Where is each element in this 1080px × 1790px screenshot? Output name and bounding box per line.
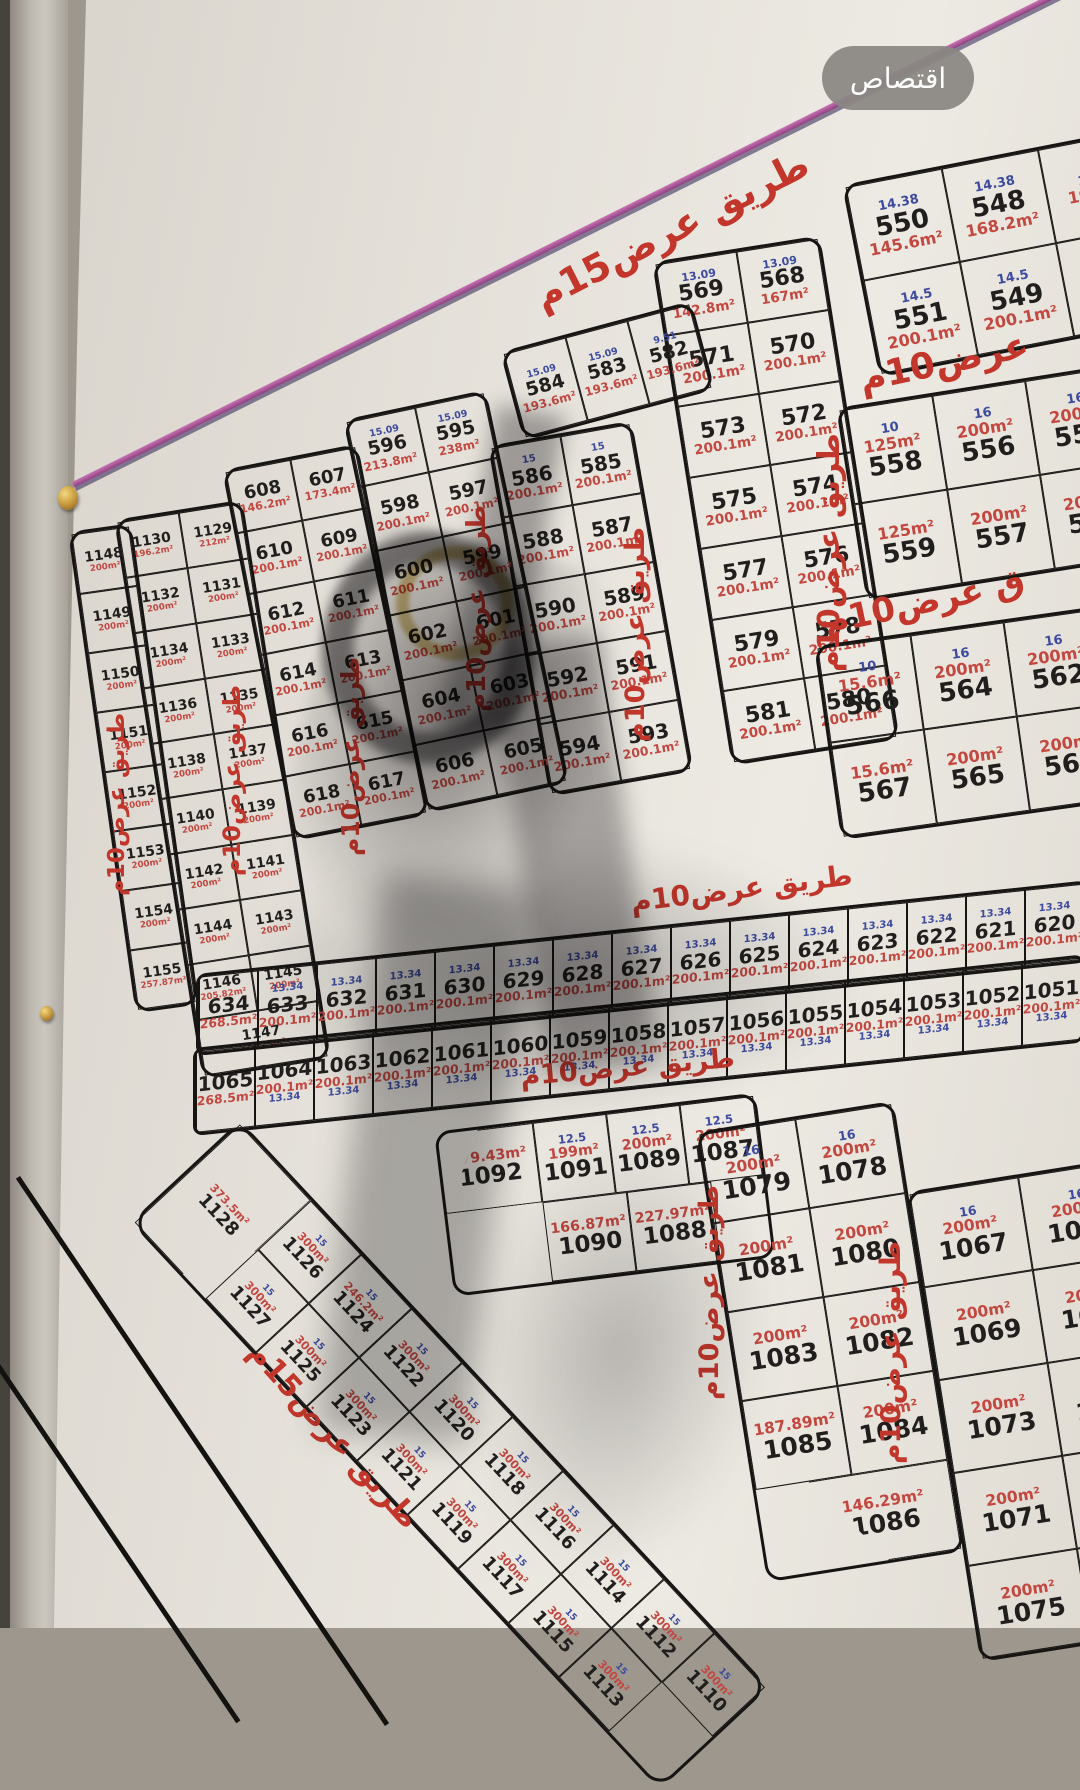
parcel-row: 1154200m²	[121, 883, 187, 950]
parcel-area: 200.1m²	[908, 943, 966, 962]
parcel-dimension: 13.34	[1036, 1012, 1068, 1026]
parcel-row: 1149200m²	[80, 586, 146, 653]
parcel-number: 563	[1042, 748, 1080, 782]
parcel-cell: 13.341051200.1m²	[1022, 958, 1080, 1046]
parcel-area: 200.1m²	[849, 949, 907, 968]
parcel-number: 1090	[557, 1228, 623, 1259]
parcel-area: 200m²	[131, 858, 163, 871]
parcel-dimension: 13.34	[977, 1018, 1009, 1032]
parcel-dimension: 13.34	[741, 1043, 773, 1057]
parcel-cell: 1150200m²	[88, 645, 154, 712]
parcel-area: 200.1m²	[613, 974, 671, 993]
parcel-number: 1092	[458, 1160, 524, 1191]
parcel-area: 268.5m²	[197, 1089, 255, 1108]
parcel-cell: 570200.1m²	[748, 310, 840, 394]
parcel-cell: 13.34627200.1m²	[612, 927, 671, 1009]
parcel-cell: 13.341064200.1m²	[255, 1038, 314, 1126]
parcel-number: 559	[881, 535, 939, 570]
parcel-row: 1148200m²	[71, 526, 137, 593]
parcel-area: 200m²	[98, 620, 130, 633]
parcel-cell: 13.341056200.1m²	[727, 989, 786, 1077]
parcel-cell: 579200.1m²	[712, 607, 804, 691]
parcel-dimension: 13.34	[918, 1024, 950, 1038]
parcel-cell: 606200.1m²	[415, 731, 497, 810]
parcel-cell: 13.34630200.1m²	[435, 946, 494, 1028]
parcel-cell: 16562200m²	[1004, 609, 1080, 716]
parcel-cell: 1133200m²	[196, 614, 266, 679]
parcel-cell: 161078200m²	[795, 1104, 905, 1208]
parcel-cell: 13.34623200.1m²	[848, 902, 907, 984]
parcel-cell: 13.34633200.1m²	[258, 964, 317, 1046]
parcel-cell: 10558125m²	[839, 396, 947, 505]
parcel-cell: 573200.1m²	[678, 394, 770, 478]
parcel-number: 564	[937, 674, 994, 708]
parcel-row: 1150200m²	[88, 645, 154, 712]
road-label-10m-vertical: طريق عرض10م	[104, 713, 130, 896]
parcel-cell: 1083200m²	[728, 1297, 838, 1401]
parcel-cell: 13.341053200.1m²	[904, 970, 963, 1058]
crop-badge[interactable]: اقتصاص	[822, 46, 974, 110]
road-label-10m-vertical: طريق عرض10م	[620, 527, 651, 742]
road-label-10m-vertical: طريق عرض10م	[874, 1241, 907, 1464]
parcel-cell: 575200.1m²	[689, 465, 781, 549]
parcel-cell: 16556200m²	[932, 381, 1040, 490]
parcel-cell: 13.34626200.1m²	[671, 921, 730, 1003]
parcel-number: 558	[867, 447, 925, 482]
parcel-cell: 1155257.87m²	[130, 942, 196, 1009]
parcel-cell: 13.34628200.1m²	[553, 933, 612, 1015]
parcel-cell: 13.341054200.1m²	[845, 976, 904, 1064]
parcel-cell: 1154200m²	[121, 883, 187, 950]
parcel-dimension: 13.34	[387, 1080, 419, 1094]
parcel-number: 555	[1066, 505, 1080, 540]
parcel-cell: 634268.5m²	[199, 970, 258, 1052]
parcel-dimension: 13.34	[328, 1086, 360, 1100]
parcel-cell: 13.34624200.1m²	[789, 908, 848, 990]
parcel-number: 562	[1030, 661, 1080, 695]
parcel-cell: 13.341063200.1m²	[314, 1032, 373, 1120]
parcel-cell: 161067200m²	[909, 1177, 1032, 1287]
parcel-cell: 13.341062200.1m²	[373, 1026, 432, 1114]
parcel-number: 1072	[1074, 1391, 1080, 1427]
parcel-number: 565	[949, 761, 1006, 795]
parcel-cell: 1148200m²	[71, 526, 137, 593]
parcel-cell: 12.51089200m²	[606, 1105, 689, 1193]
parcel-cell: 13.341052200.1m²	[963, 964, 1022, 1052]
push-pin	[58, 486, 78, 510]
parcel-cell: 14.38550145.6m²	[846, 169, 960, 281]
parcel-number: 557	[973, 520, 1031, 555]
parcel-area: 200.1m²	[790, 956, 848, 975]
parcel-cell: 12.51091199m²	[533, 1114, 616, 1202]
parcel-cell: 13.34625200.1m²	[730, 915, 789, 997]
parcel-cell: 1149200m²	[80, 586, 146, 653]
parcel-dimension: 13.34	[269, 1092, 301, 1106]
parcel-area: 200.1m²	[259, 1011, 317, 1030]
parcel-cell: 1085187.89m²	[742, 1386, 852, 1490]
parcel-area: 200.1m²	[495, 987, 553, 1006]
parcel-cell: 16564200m²	[910, 622, 1016, 729]
parcel-area: 200.1m²	[1026, 931, 1080, 950]
parcel-cell: 1143200m²	[240, 890, 310, 955]
parcel-row: 1155257.87m²	[130, 942, 196, 1009]
parcel-cell: 13.34631200.1m²	[376, 952, 435, 1034]
parcel-number: 1091	[543, 1156, 609, 1187]
parcel-area: 200.1m²	[318, 1005, 376, 1024]
road-label-10m-vertical: طريق عرض10م	[336, 657, 365, 856]
parcel-number: 566	[844, 687, 901, 721]
parcel-cell: 14.38548168.2m²	[942, 150, 1056, 262]
parcel-cell: 581200.1m²	[723, 678, 815, 762]
parcel-area: 200m²	[89, 561, 121, 574]
parcel-dimension: 13.34	[446, 1074, 478, 1088]
parcel-area: 200.1m²	[731, 962, 789, 981]
parcel-cell: 13.34629200.1m²	[494, 939, 553, 1021]
parcel-number: 567	[856, 774, 913, 808]
parcel-block-r2: 1056615.6m²16564200m²16562200m²56715.6m²…	[814, 606, 1080, 840]
parcel-cell: 13.34622200.1m²	[907, 896, 966, 978]
parcel-cell: 1075200m²	[968, 1549, 1080, 1659]
parcel-cell: 565200m²	[924, 716, 1030, 823]
parcel-area: 268.5m²	[200, 1012, 258, 1031]
parcel-cell: 605200.1m²	[484, 716, 566, 795]
road-label-10m-vertical: طريق عرض10م	[462, 505, 492, 712]
parcel-area: 200m²	[106, 680, 138, 693]
parcel-cell: 13.341055200.1m²	[786, 982, 845, 1070]
parcel-dimension: 13.34	[800, 1036, 832, 1050]
parcel-cell: 577200.1m²	[700, 536, 792, 620]
parcel-number: 556	[960, 433, 1018, 468]
parcel-cell: 15585200.1m²	[560, 424, 641, 505]
parcel-cell: 1129212m²	[179, 503, 249, 568]
parcel-cell: 1131200m²	[187, 558, 257, 623]
parcel-area: 200.1m²	[672, 968, 730, 987]
road-label-10m-vertical: طريق عرض10م	[694, 1185, 725, 1400]
parcel-number: 554	[1052, 418, 1080, 453]
parcel-cell: 1092179.43m²	[437, 1123, 542, 1214]
plat-map-photo: { "badge": { "label": "اقتصاص" }, "roads…	[0, 0, 1080, 1628]
parcel-cell: 1065268.5m²	[196, 1044, 255, 1132]
parcel-cell: 56715.6m²	[831, 730, 937, 837]
parcel-cell: 1071200m²	[954, 1456, 1077, 1566]
road-label-10m-vertical: طريق عرض10م	[218, 685, 246, 876]
push-pin	[40, 1006, 53, 1021]
parcel-area: 200.1m²	[377, 999, 435, 1018]
parcel-area: 200m²	[139, 917, 171, 930]
parcel-cell: 1090166.87m²	[543, 1192, 637, 1282]
parcel-cell: 1069200m²	[924, 1270, 1047, 1380]
parcel-cell: 1073200m²	[939, 1363, 1062, 1473]
parcel-area: 200.1m²	[554, 980, 612, 999]
parcel-cell: 13.34632200.1m²	[317, 958, 376, 1040]
parcel-area: 200.1m²	[436, 993, 494, 1012]
parcel-number: 1089	[616, 1147, 682, 1178]
parcel-cell: 13.09568167m²	[736, 239, 828, 323]
parcel-dimension: 13.34	[859, 1030, 891, 1044]
parcel-cell: 13.34621200.1m²	[966, 890, 1025, 972]
parcel-cell: 13.34620200.1m²	[1025, 884, 1080, 966]
parcel-area: 200.1m²	[967, 937, 1025, 956]
parcel-cell: 13.341061200.1m²	[432, 1020, 491, 1108]
parcel-cell: 1081200m²	[714, 1208, 824, 1312]
